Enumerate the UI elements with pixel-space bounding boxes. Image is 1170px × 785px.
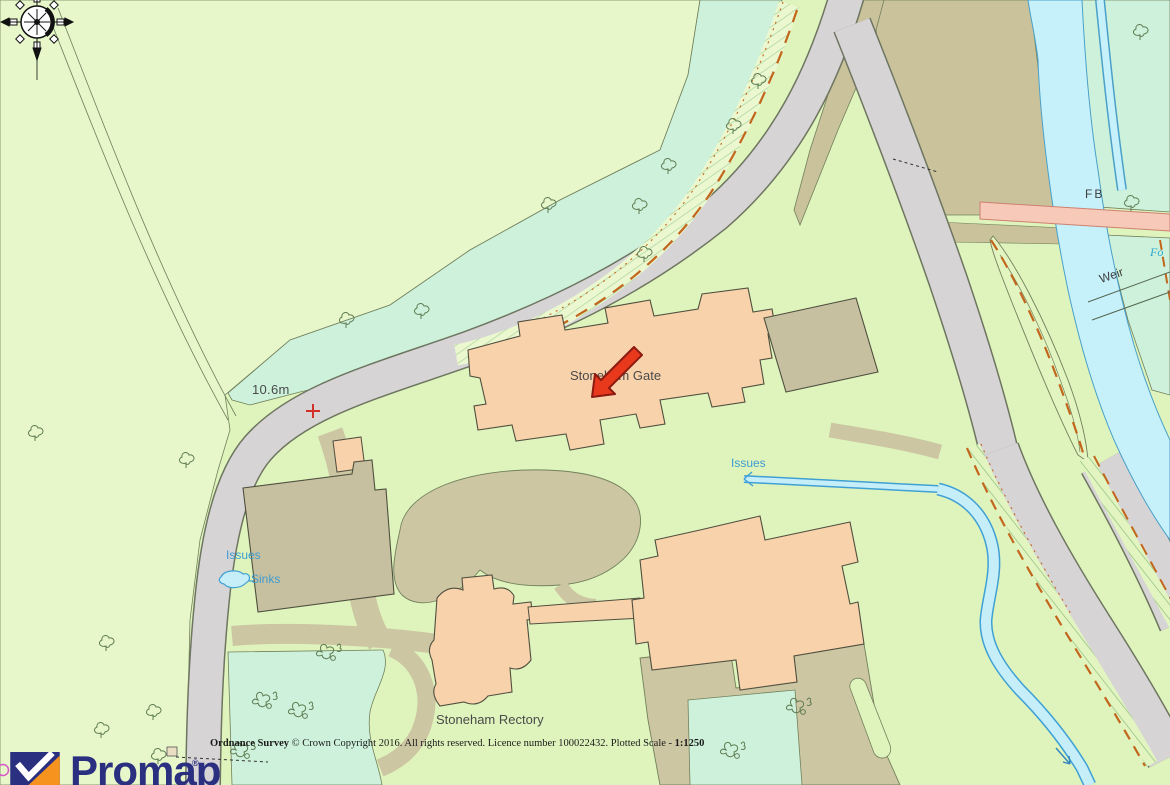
attribution-notice: © Crown Copyright 2016. All rights reser… [289,738,675,749]
copyright-attribution: Ordnance Survey © Crown Copyright 2016. … [210,738,704,749]
registered-mark: ® [192,758,199,768]
spot-height-label: 10.6m [252,382,290,397]
promap-logo-icon [8,752,62,785]
plotted-scale-value: 1:1250 [675,738,705,749]
attribution-publisher: Ordnance Survey [210,738,289,749]
issues-label-west: Issues [226,548,261,562]
promap-logo: Promap ® [8,752,220,785]
footbridge-label: FB [1085,187,1104,201]
issues-label-east: Issues [731,456,766,470]
map-viewport[interactable]: 10.6m Issues Sinks Issues FB Weir Fo Sto… [0,0,1170,785]
map-marker-arrow-icon[interactable] [580,340,650,410]
spot-height-cross-icon [303,402,323,422]
ford-label-partial: Fo [1150,245,1163,260]
promap-logo-text: Promap [70,752,220,785]
sinks-label: Sinks [251,572,280,586]
stoneham-rectory-label: Stoneham Rectory [436,712,544,727]
